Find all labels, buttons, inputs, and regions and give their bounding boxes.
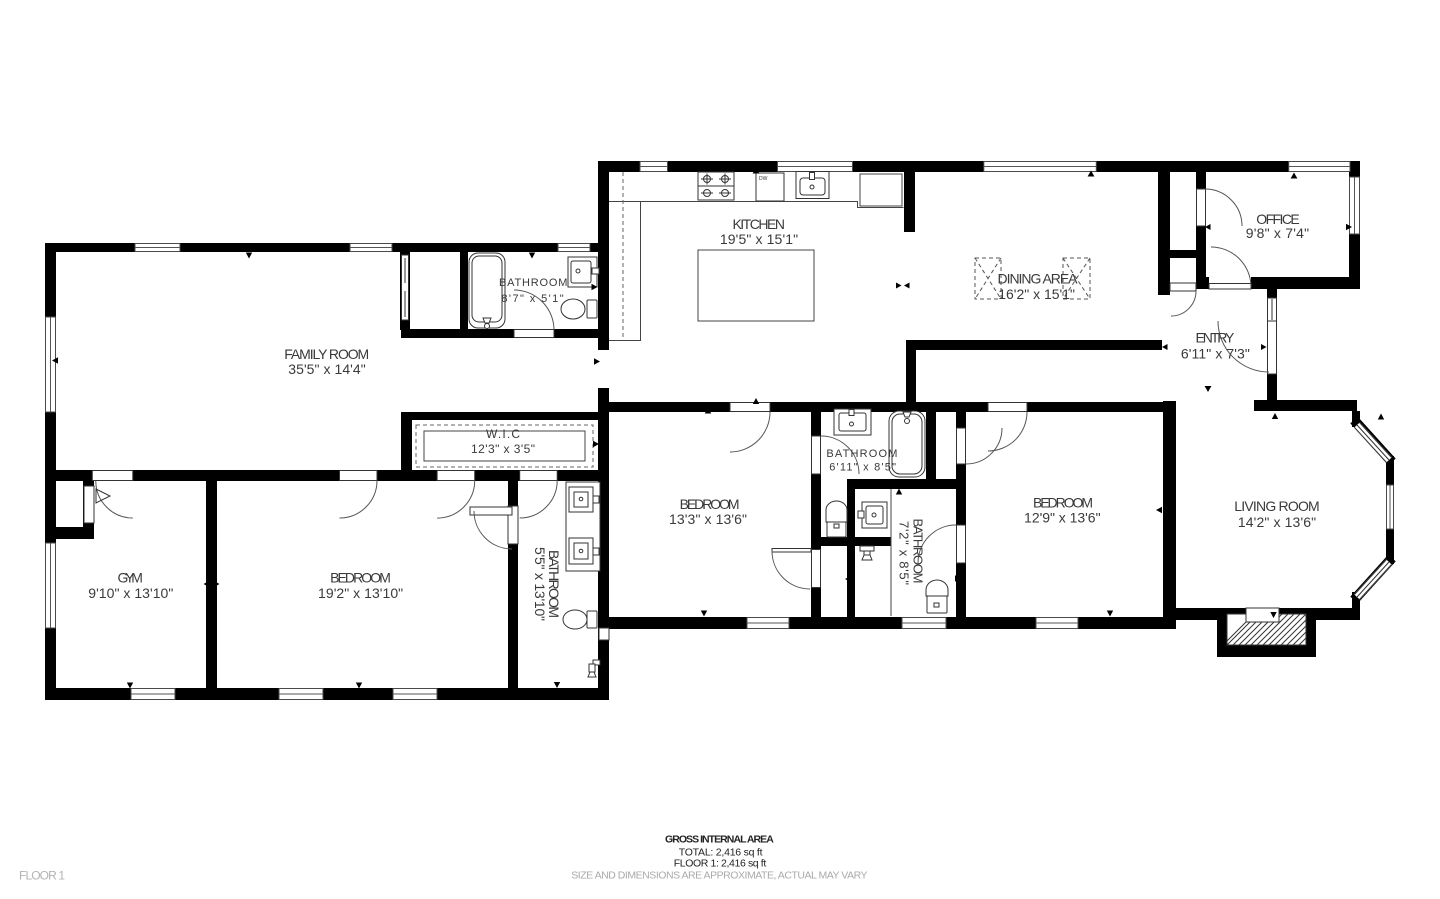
svg-text:BEDROOM: BEDROOM [330, 570, 391, 586]
svg-text:GYM: GYM [117, 570, 143, 586]
svg-text:8'7" x 5'1": 8'7" x 5'1" [501, 293, 563, 305]
svg-text:16'2" x 15'1": 16'2" x 15'1" [998, 286, 1075, 302]
svg-text:KITCHEN: KITCHEN [732, 216, 785, 232]
svg-text:35'5" x 14'4": 35'5" x 14'4" [288, 361, 366, 377]
svg-text:9'10" x 13'10": 9'10" x 13'10" [88, 585, 173, 601]
svg-text:ENTRY: ENTRY [1196, 329, 1235, 345]
svg-text:BATHROOM: BATHROOM [826, 448, 897, 460]
svg-text:6'11" x 7'3": 6'11" x 7'3" [1181, 345, 1250, 361]
svg-text:12'9" x 13'6": 12'9" x 13'6" [1024, 510, 1101, 526]
svg-text:9'8" x 7'4": 9'8" x 7'4" [1246, 225, 1309, 241]
svg-text:BEDROOM: BEDROOM [680, 496, 740, 512]
svg-text:6'11" x 8'5": 6'11" x 8'5" [829, 462, 896, 474]
svg-text:FLOOR 1: FLOOR 1 [19, 868, 65, 882]
svg-text:DINING AREA: DINING AREA [998, 270, 1079, 286]
svg-text:GROSS INTERNAL AREA: GROSS INTERNAL AREA [665, 834, 774, 846]
svg-text:W.I.C: W.I.C [486, 427, 520, 441]
svg-text:14'2" x 13'6": 14'2" x 13'6" [1238, 514, 1316, 530]
svg-text:FAMILY ROOM: FAMILY ROOM [284, 346, 369, 362]
svg-text:FLOOR 1: 2,416 sq ft: FLOOR 1: 2,416 sq ft [674, 858, 767, 870]
svg-text:SIZE AND DIMENSIONS ARE APPROX: SIZE AND DIMENSIONS ARE APPROXIMATE, ACT… [571, 870, 867, 882]
svg-text:19'2" x 13'10": 19'2" x 13'10" [318, 585, 403, 601]
svg-text:LIVING ROOM: LIVING ROOM [1234, 498, 1319, 514]
svg-text:13'3" x 13'6": 13'3" x 13'6" [669, 511, 747, 527]
svg-text:BATHROOM: BATHROOM [499, 277, 568, 289]
svg-text:BATHROOM: BATHROOM [911, 519, 926, 584]
svg-text:12'3" x 3'5": 12'3" x 3'5" [471, 442, 535, 456]
svg-text:5'5" x 13'10": 5'5" x 13'10" [532, 547, 548, 621]
svg-text:19'5" x 15'1": 19'5" x 15'1" [720, 231, 798, 247]
svg-text:7'2" x 8'5": 7'2" x 8'5" [896, 521, 911, 585]
svg-text:BEDROOM: BEDROOM [1033, 495, 1093, 511]
svg-text:DW: DW [759, 176, 768, 182]
